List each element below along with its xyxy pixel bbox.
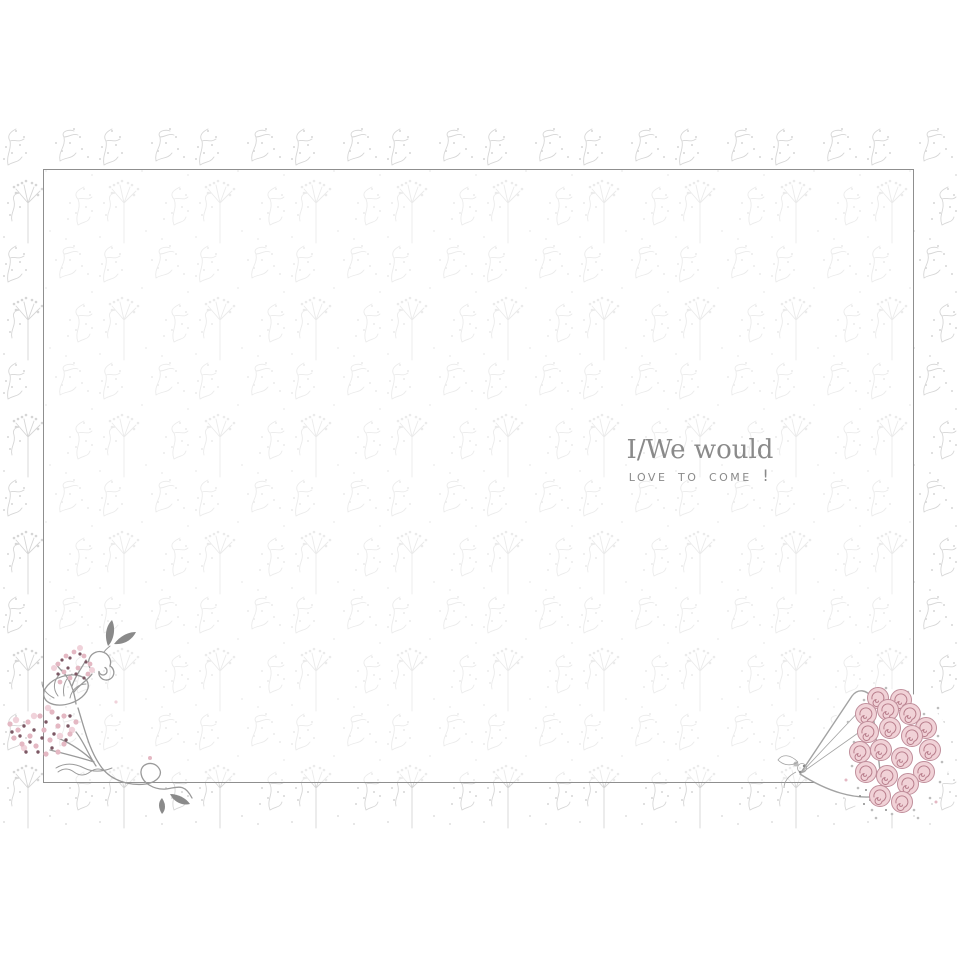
message-line-2: love to come ! bbox=[595, 466, 805, 486]
flourish-spiral bbox=[89, 652, 114, 681]
floral-flourish-icon bbox=[0, 612, 210, 817]
berry-cluster-lower bbox=[7, 705, 78, 757]
rsvp-message: I/We would love to come ! bbox=[595, 436, 805, 486]
rose-bouquet-icon bbox=[768, 662, 960, 840]
flourish-leaves bbox=[104, 620, 136, 652]
message-line-1: I/We would bbox=[595, 436, 805, 464]
rsvp-card-image: I/We would love to come ! bbox=[0, 0, 960, 960]
